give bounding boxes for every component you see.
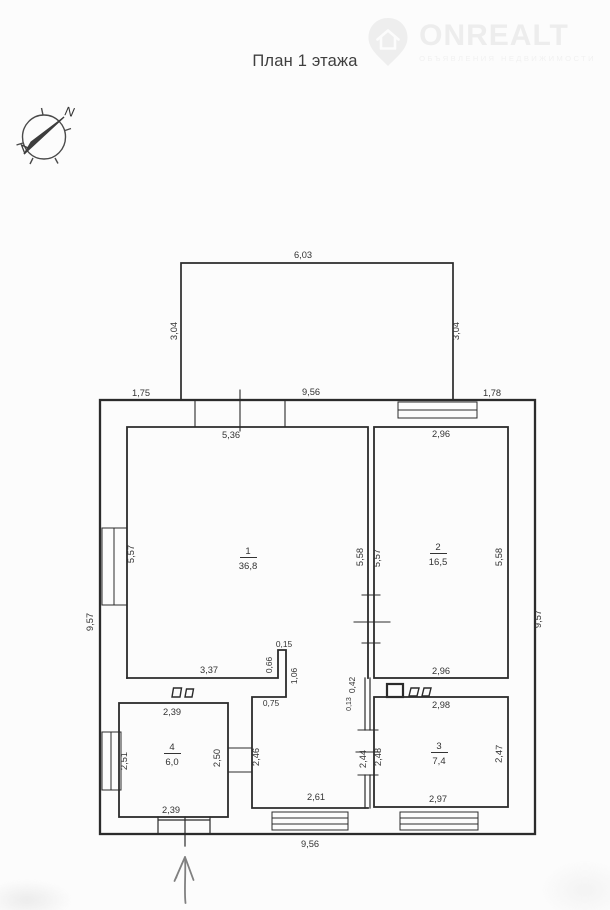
room-4-label: 4 6,0 — [164, 742, 181, 768]
dim-room4-top: 2,39 — [163, 707, 181, 717]
dim-top-left: 1,75 — [132, 388, 150, 398]
floor-plan-page: План 1 этажа ONREALT ОБЪЯВЛЕНИЯ НЕДВИЖИМ… — [0, 0, 610, 910]
dim-top-center: 9,56 — [302, 387, 320, 397]
dim-hall-entry: 1,06 — [289, 668, 299, 685]
room-2-area: 16,5 — [429, 557, 448, 568]
dimension-labels: 6,03 3,04 3,04 1,75 9,56 1,78 5,36 2,96 … — [85, 250, 543, 849]
room-1-area: 36,8 — [239, 561, 258, 572]
dim-room3-right: 2,47 — [494, 745, 505, 763]
dim-hall-left: 2,46 — [251, 748, 261, 766]
door-symbols — [172, 684, 431, 697]
dim-hall-right: 2,44 — [358, 750, 368, 768]
entrance-arrow-icon — [175, 857, 194, 903]
dim-room1-right: 5,58 — [355, 548, 365, 566]
dim-room1-bottom: 3,37 — [200, 665, 218, 675]
dim-right-wall: 9,57 — [533, 610, 543, 628]
dim-room3-bottom: 2,97 — [429, 794, 447, 804]
dim-porch-left: 3,04 — [169, 322, 179, 340]
dim-porch-width: 6,03 — [294, 250, 312, 260]
dim-room3-left: 2,48 — [373, 748, 383, 766]
dim-top-right: 1,78 — [483, 388, 501, 398]
dim-wall-bottom: 0,13 — [346, 697, 353, 711]
dim-wall-top: 0,42 — [347, 677, 357, 694]
room-3-number: 3 — [436, 741, 441, 752]
dim-room4-left: 2,51 — [119, 752, 129, 770]
room-3-label: 3 7,4 — [431, 741, 448, 767]
dim-room4-right: 2,50 — [212, 749, 222, 767]
room-1-number: 1 — [245, 546, 250, 557]
room-4-number: 4 — [169, 742, 174, 753]
dim-hall-top: 0,75 — [263, 698, 280, 708]
dim-room1-top: 5,36 — [222, 430, 240, 440]
room-2-label: 2 16,5 — [429, 542, 448, 568]
dim-stub-height: 0,66 — [264, 657, 274, 674]
floor-plan-drawing: 6,03 3,04 3,04 1,75 9,56 1,78 5,36 2,96 … — [0, 0, 610, 910]
dim-bottom-wall: 9,56 — [301, 839, 319, 849]
dim-room3-top: 2,98 — [432, 700, 450, 710]
dim-room4-bottom: 2,39 — [162, 805, 180, 815]
dim-room2-bottom: 2,96 — [432, 666, 450, 676]
dim-hall-bottom: 2,61 — [307, 792, 325, 802]
dim-stub-width: 0,15 — [276, 639, 293, 649]
room-3-area: 7,4 — [432, 756, 445, 767]
room-1-label: 1 36,8 — [239, 546, 258, 572]
dim-room1-left: 5,57 — [126, 545, 136, 563]
room-2-number: 2 — [435, 542, 440, 553]
dim-left-wall: 9,57 — [85, 613, 95, 631]
room-4-area: 6,0 — [165, 757, 178, 768]
dim-room2-top: 2,96 — [432, 429, 450, 439]
room-labels: 1 36,8 2 16,5 3 7,4 4 6,0 — [164, 542, 448, 768]
dim-porch-right: 3,04 — [451, 322, 461, 340]
dim-room2-right: 5,58 — [494, 548, 504, 566]
window-symbols — [102, 402, 478, 830]
dim-room2-left: 5,57 — [372, 549, 382, 567]
